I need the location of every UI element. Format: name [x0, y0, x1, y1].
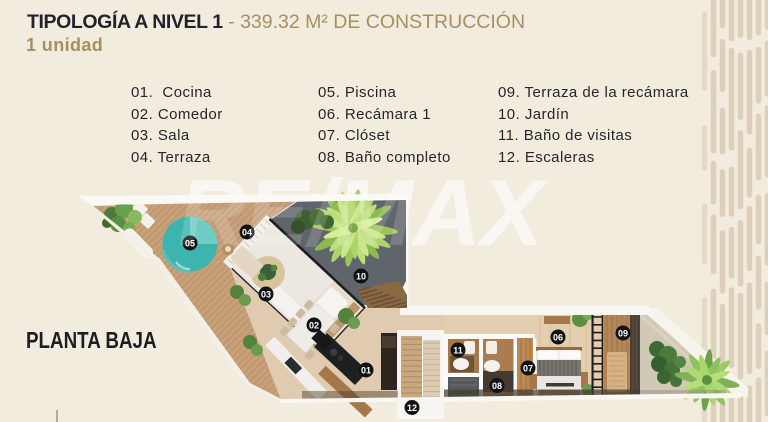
svg-text:01: 01: [361, 365, 371, 375]
svg-text:02: 02: [309, 320, 319, 330]
svg-text:06: 06: [553, 332, 563, 342]
svg-text:08: 08: [492, 381, 502, 391]
svg-text:10: 10: [356, 271, 366, 281]
svg-text:12: 12: [407, 403, 417, 413]
svg-text:09: 09: [618, 328, 628, 338]
svg-text:11: 11: [453, 345, 463, 355]
svg-text:07: 07: [523, 363, 533, 373]
svg-text:03: 03: [261, 289, 271, 299]
